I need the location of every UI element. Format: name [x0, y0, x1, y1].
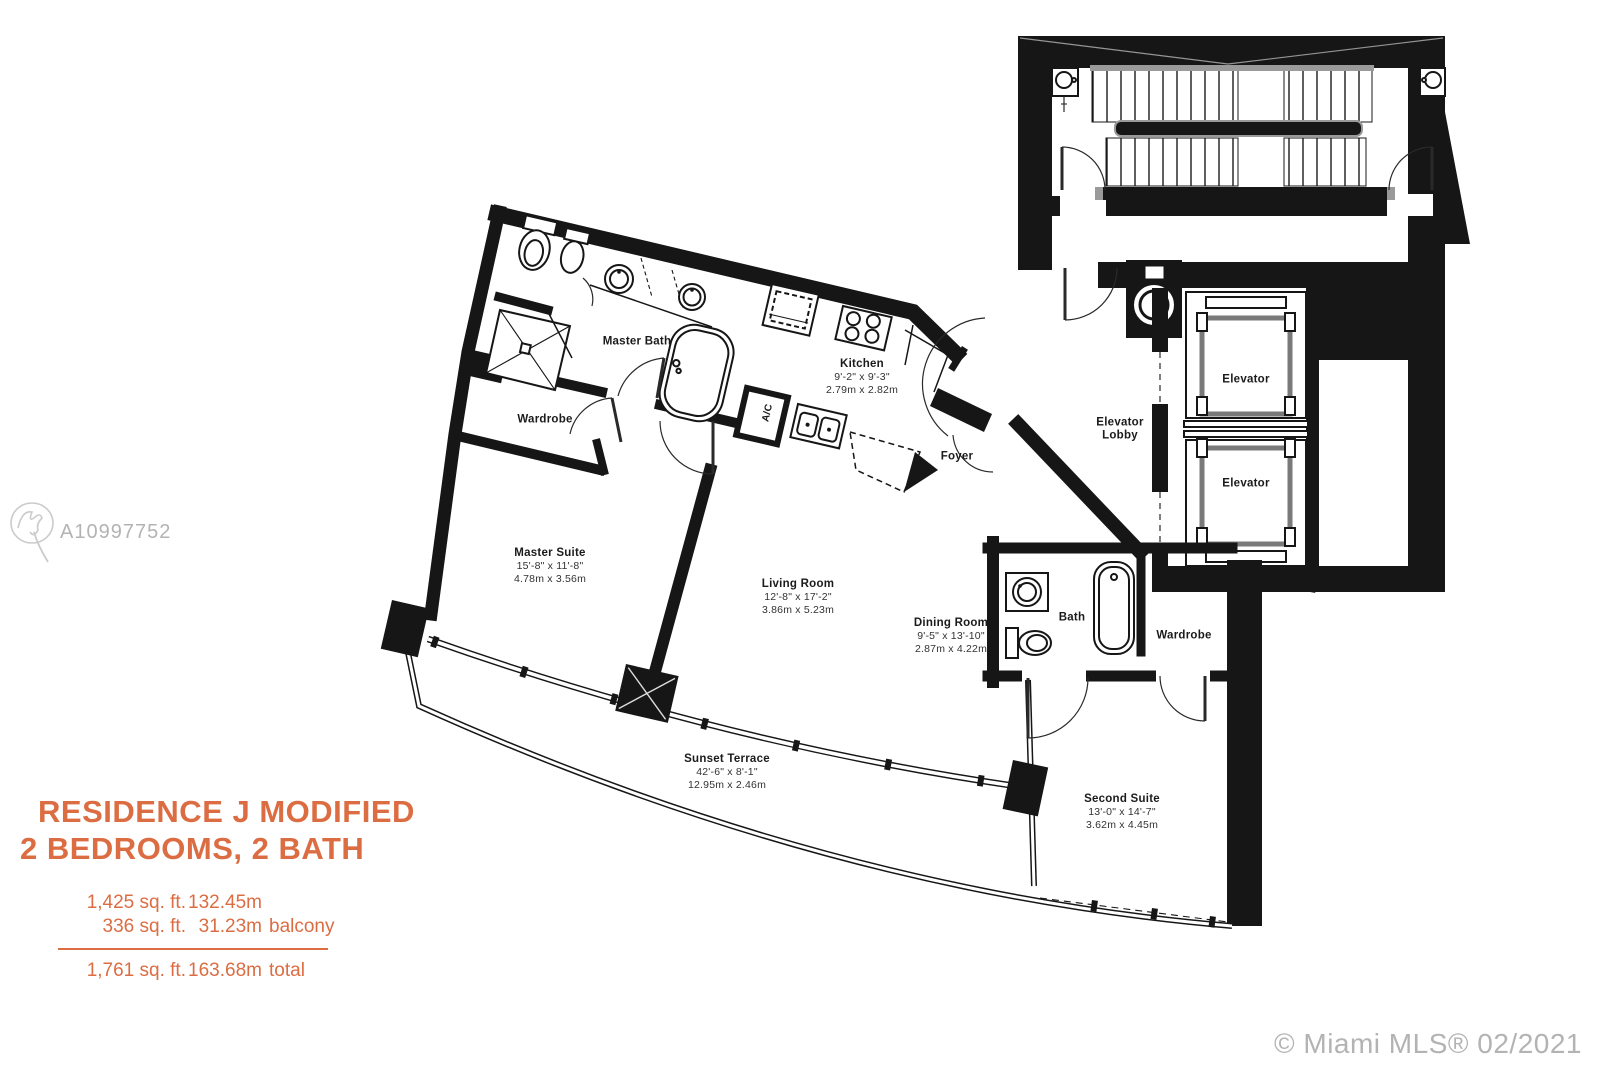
room-dim: 4.78m x 3.56m — [514, 573, 586, 585]
room-name: Lobby — [1096, 430, 1143, 443]
room-dim: 15'-8" x 11'-8" — [514, 560, 586, 572]
stair-landing — [1115, 121, 1362, 136]
bathtub-icon — [1094, 562, 1134, 654]
area-summary: 1,425 sq. ft.132.45m 336 sq. ft.31.23mba… — [58, 892, 335, 984]
wall-pillar — [615, 664, 678, 723]
area-metric: 31.23m — [186, 916, 262, 938]
kitchen-sink-icon — [790, 404, 846, 448]
elevator-car — [1186, 292, 1306, 418]
label-elevator-1: Elevator — [1222, 373, 1269, 386]
room-dim: 12.95m x 2.46m — [684, 779, 770, 791]
label-living-room: Living Room 12'-8" x 17'-2" 3.86m x 5.23… — [762, 578, 834, 616]
stair-rail — [1103, 187, 1387, 200]
label-master-suite: Master Suite 15'-8" x 11'-8" 4.78m x 3.5… — [514, 547, 586, 585]
room-name: Master Bath — [603, 335, 672, 348]
room-name: Living Room — [762, 578, 834, 591]
label-bath: Bath — [1059, 611, 1086, 624]
area-sqft: 1,761 sq. ft. — [58, 960, 186, 982]
mls-number-watermark: A10997752 — [60, 521, 171, 544]
room-dim: 9'-5" x 13'-10" — [914, 630, 988, 642]
area-total-row: 1,761 sq. ft.163.68mtotal — [58, 960, 335, 984]
label-dining-room: Dining Room 9'-5" x 13'-10" 2.87m x 4.22… — [914, 617, 988, 655]
room-name: Foyer — [941, 450, 974, 463]
room-dim: 9'-2" x 9'-3" — [826, 371, 898, 383]
elevator-core — [1018, 112, 1470, 592]
room-dim: 2.79m x 2.82m — [826, 384, 898, 396]
label-master-bath: Master Bath — [603, 335, 672, 348]
sink-icon — [679, 284, 705, 310]
area-metric: 163.68m — [186, 960, 262, 982]
floor-plan-page: Master Bath Wardrobe Kitchen 9'-2" x 9'-… — [0, 0, 1600, 1066]
area-note: total — [269, 960, 305, 981]
room-dim: 3.86m x 5.23m — [762, 604, 834, 616]
stair-nosing — [1090, 65, 1374, 71]
label-sunset-terrace: Sunset Terrace 42'-6" x 8'-1" 12.95m x 2… — [684, 753, 770, 791]
room-dim: 13'-0" x 14'-7" — [1084, 806, 1160, 818]
label-elevator-lobby: Elevator Lobby — [1096, 417, 1143, 444]
room-name: Sunset Terrace — [684, 753, 770, 766]
area-note: balcony — [269, 916, 335, 937]
room-name: Bath — [1059, 611, 1086, 624]
label-elevator-2: Elevator — [1222, 477, 1269, 490]
label-kitchen: Kitchen 9'-2" x 9'-3" 2.79m x 2.82m — [826, 358, 898, 396]
area-divider — [58, 948, 328, 950]
mls-credit: © Miami MLS® 02/2021 — [1274, 1028, 1582, 1060]
area-row: 1,425 sq. ft.132.45m — [58, 892, 335, 916]
standpipe-icon — [1052, 68, 1078, 112]
toilet-icon — [1006, 628, 1051, 658]
area-metric: 132.45m — [186, 892, 262, 914]
room-name: Kitchen — [826, 358, 898, 371]
wall-pillar — [381, 600, 429, 657]
room-name: Elevator — [1096, 417, 1143, 430]
mls-logo-icon — [8, 498, 60, 570]
label-wardrobe-second: Wardrobe — [1156, 629, 1211, 642]
room-dim: 3.62m x 4.45m — [1084, 819, 1160, 831]
label-foyer: Foyer — [941, 450, 974, 463]
room-dim: 2.87m x 4.22m — [914, 643, 988, 655]
area-sqft: 336 sq. ft. — [58, 916, 186, 938]
room-name: Dining Room — [914, 617, 988, 630]
label-wardrobe-master: Wardrobe — [517, 413, 572, 426]
room-name: Second Suite — [1084, 793, 1160, 806]
residence-subtitle: 2 BEDROOMS, 2 BATH — [20, 831, 364, 867]
residence-title: RESIDENCE J MODIFIED — [38, 794, 415, 830]
wall-pillar — [1003, 760, 1049, 816]
room-name: Wardrobe — [1156, 629, 1211, 642]
label-second-suite: Second Suite 13'-0" x 14'-7" 3.62m x 4.4… — [1084, 793, 1160, 831]
area-sqft: 1,425 sq. ft. — [58, 892, 186, 914]
room-dim: 12'-8" x 17'-2" — [762, 591, 834, 603]
room-name: Wardrobe — [517, 413, 572, 426]
area-row: 336 sq. ft.31.23mbalcony — [58, 916, 335, 940]
room-dim: 42'-6" x 8'-1" — [684, 766, 770, 778]
room-name: Elevator — [1222, 373, 1269, 386]
room-name: Elevator — [1222, 477, 1269, 490]
room-name: Master Suite — [514, 547, 586, 560]
sink-icon — [605, 265, 633, 293]
stairwell — [1018, 36, 1445, 218]
